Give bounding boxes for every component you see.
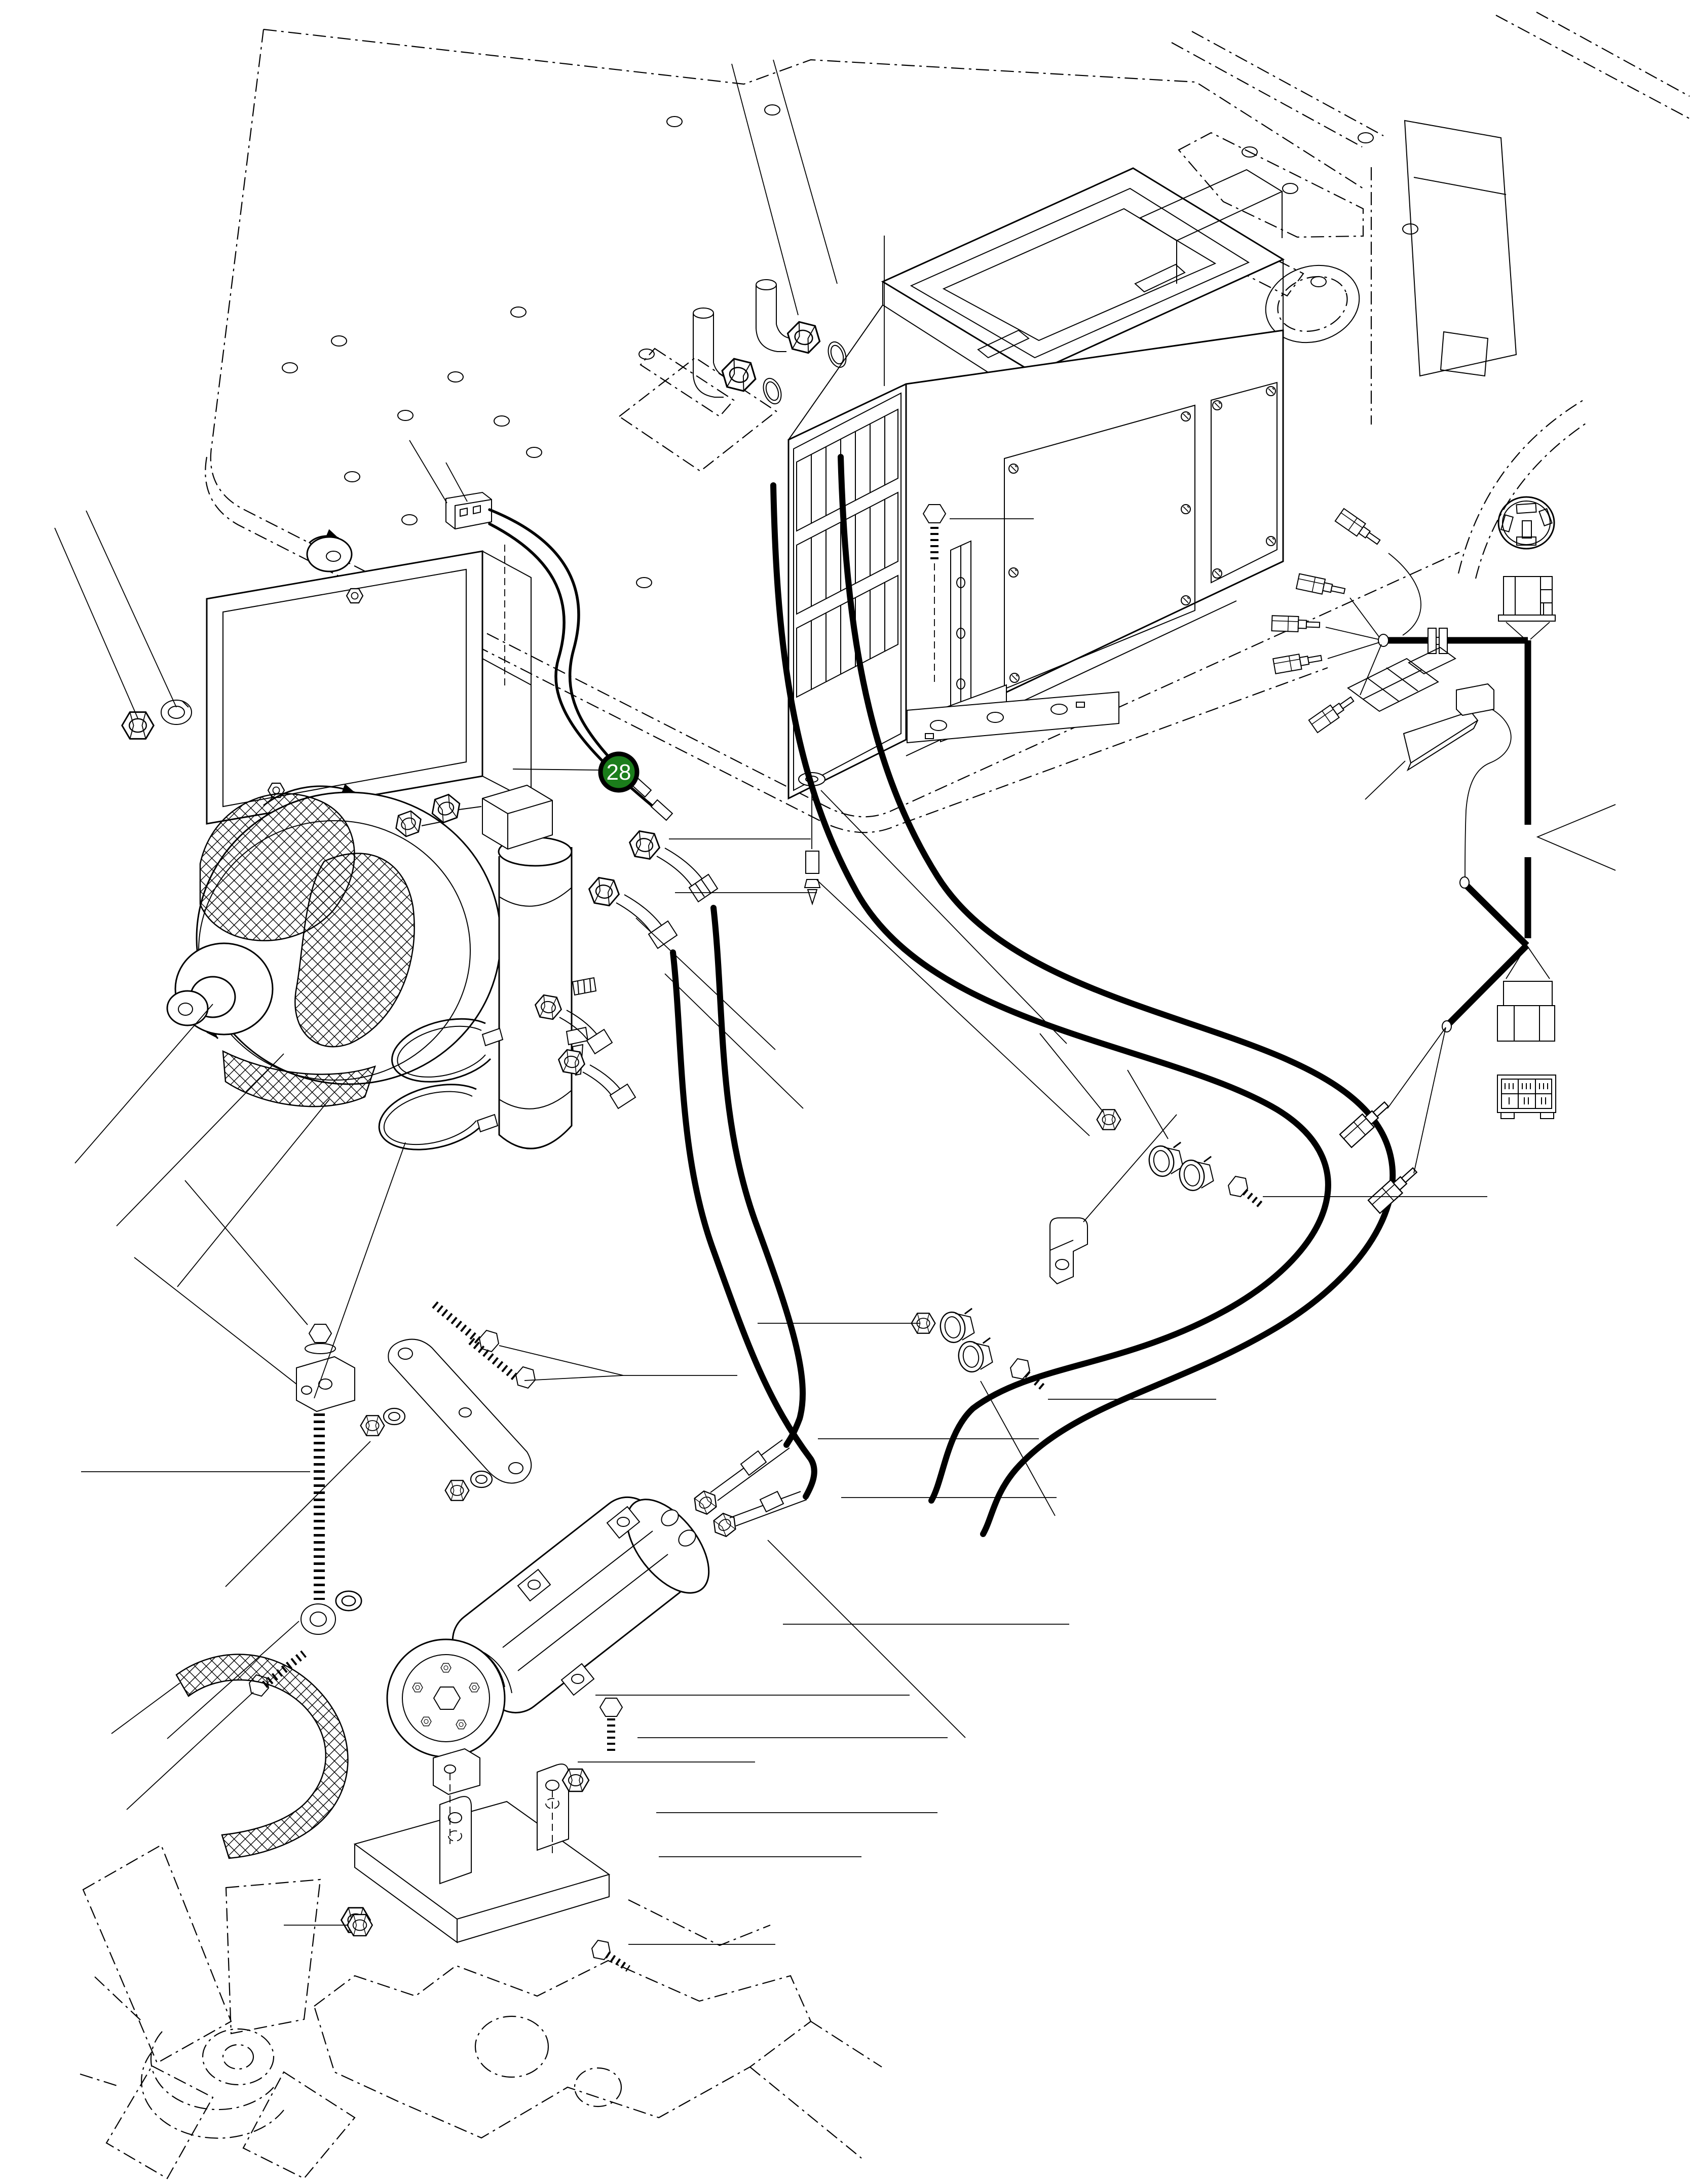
fuse-box bbox=[1497, 1075, 1556, 1119]
condenser-assembly bbox=[122, 536, 825, 1150]
engine-block-phantom bbox=[314, 1900, 882, 2158]
hose-clamps bbox=[912, 1109, 1263, 1389]
adjusting-rod-assembly bbox=[249, 1324, 361, 1696]
callout-leader bbox=[513, 769, 599, 770]
hose-drier bbox=[673, 952, 814, 1497]
brace-strap bbox=[388, 1339, 531, 1483]
exploded-parts-diagram: 28 bbox=[0, 0, 1690, 2184]
round-connector bbox=[1498, 497, 1554, 549]
heater-evaporator-assembly bbox=[693, 168, 1283, 798]
relay-socket-block bbox=[1348, 647, 1455, 711]
taped-terminals bbox=[1340, 1027, 1446, 1213]
engine-fan-phantom bbox=[80, 1845, 355, 2178]
fan-shroud bbox=[167, 786, 501, 1106]
parts-diagram-page: 28 bbox=[0, 0, 1690, 2184]
terminal-fan bbox=[1272, 509, 1421, 733]
cab-pillar bbox=[1371, 121, 1587, 579]
condenser-frame bbox=[207, 536, 531, 824]
wiring-harness bbox=[1272, 497, 1616, 1213]
callout-label: 28 bbox=[607, 760, 631, 785]
heater-pipes bbox=[693, 280, 849, 406]
inline-fuse-holder bbox=[1428, 628, 1447, 654]
hose-bracket-tab bbox=[1050, 1218, 1087, 1284]
harness-bracket-plate bbox=[1404, 711, 1478, 770]
pigtail-connector bbox=[1456, 684, 1511, 880]
relay bbox=[1498, 577, 1555, 639]
bulkhead-connector bbox=[1497, 945, 1555, 1041]
